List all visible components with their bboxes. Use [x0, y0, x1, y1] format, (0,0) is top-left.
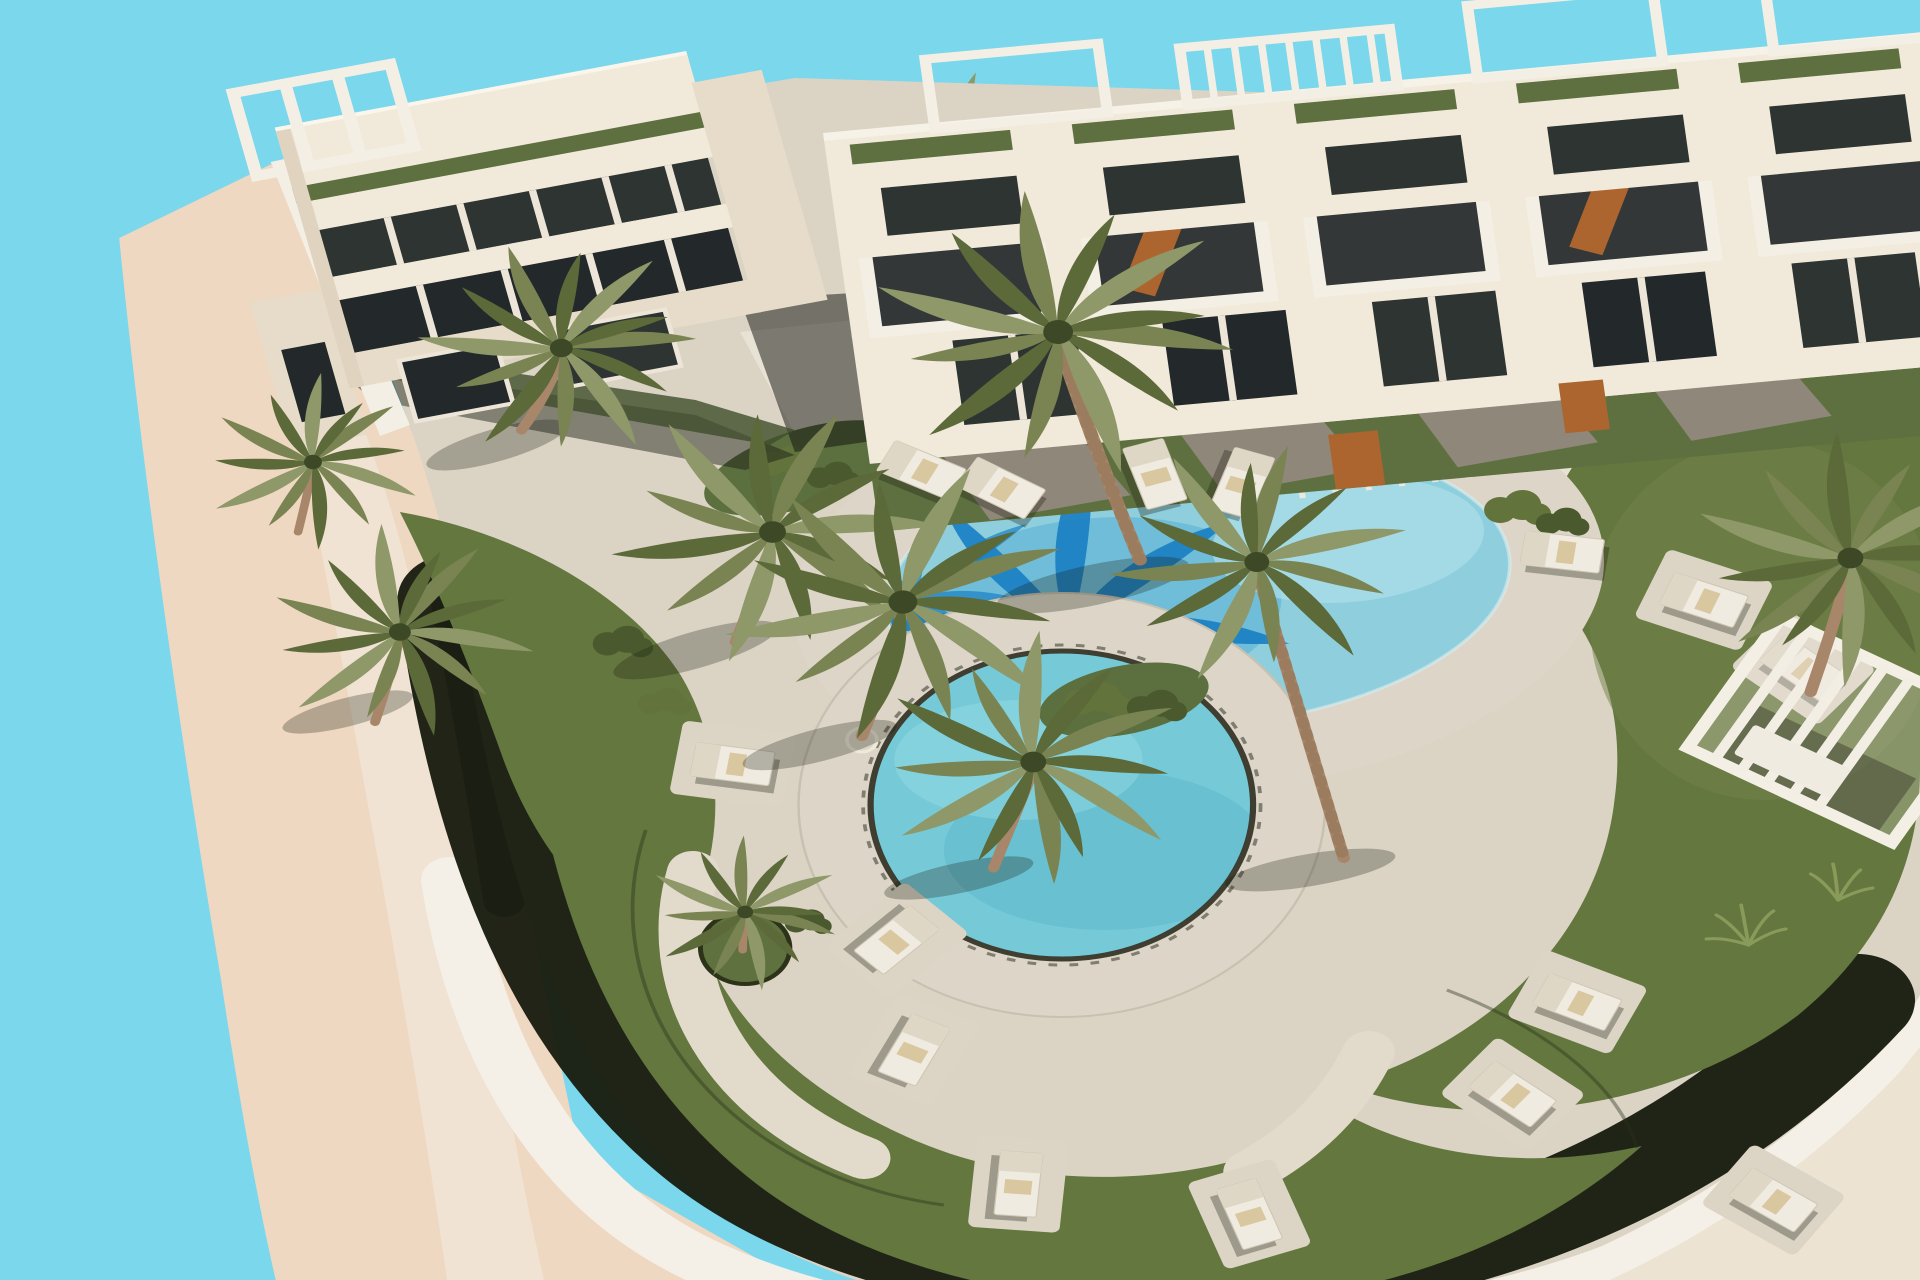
sun-lounger: [985, 1150, 1043, 1222]
scene-render: [0, 0, 1920, 1280]
